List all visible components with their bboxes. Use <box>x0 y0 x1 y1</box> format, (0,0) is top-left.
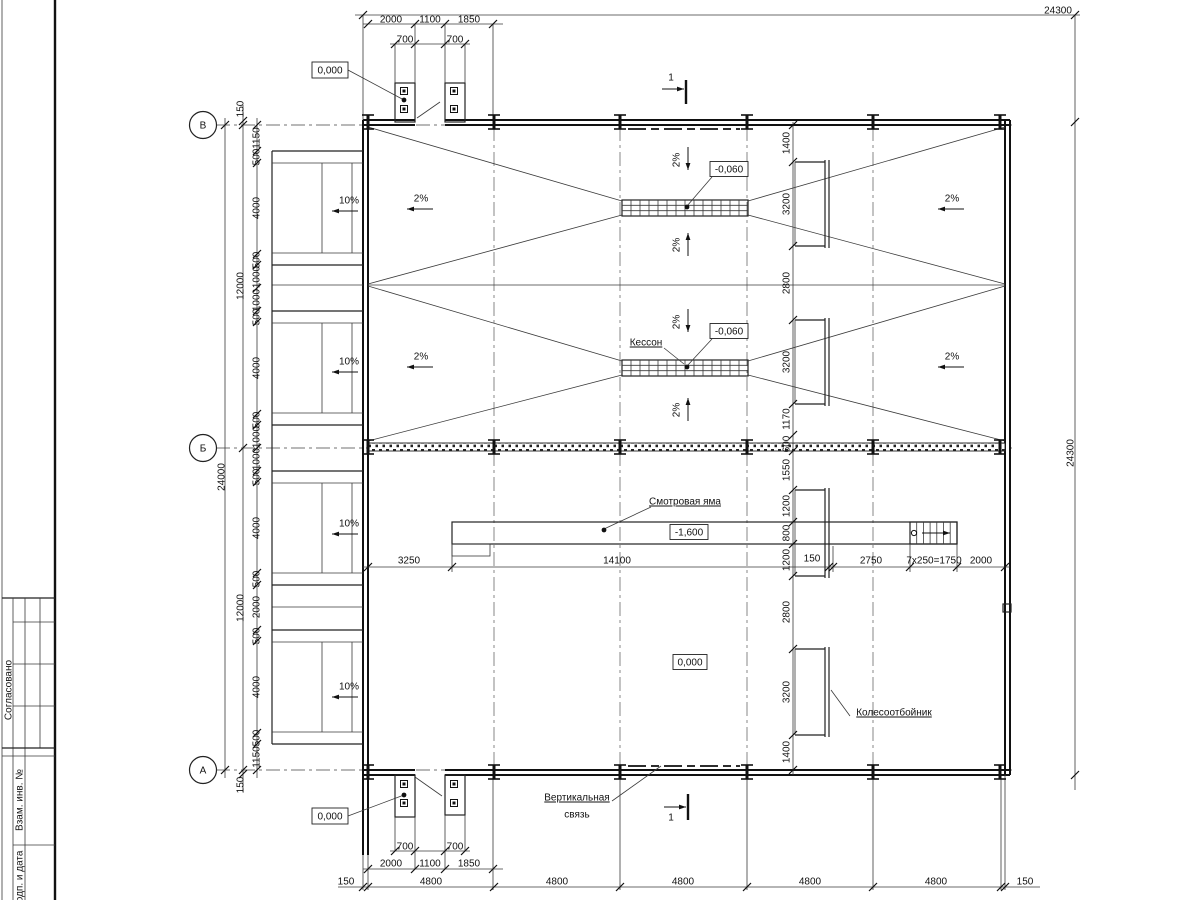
text-labels: 243002000110018507007000,000115011505004… <box>4 6 1077 900</box>
dim: 150 <box>236 776 247 793</box>
dim: 700 <box>397 35 414 46</box>
dim: 3250 <box>398 556 421 567</box>
dim: 500 <box>252 411 263 428</box>
floor-slope-lines <box>272 127 1005 607</box>
dim: 2800 <box>782 600 793 623</box>
note: Вертикальная <box>544 793 609 804</box>
dim: 1400 <box>782 740 793 763</box>
building-walls <box>363 120 1010 855</box>
slope: 2% <box>672 403 683 418</box>
dim: 1850 <box>458 859 481 870</box>
dim: 2750 <box>860 556 883 567</box>
elev: 0,000 <box>317 66 342 77</box>
section-number: 1 <box>668 813 674 824</box>
dim: 4800 <box>546 877 569 888</box>
dim: 1000 <box>252 425 263 448</box>
dim: 800 <box>782 524 793 541</box>
dim: 700 <box>397 842 414 853</box>
dim: 2000 <box>252 595 263 618</box>
elev: -1,600 <box>675 528 704 539</box>
dim: 4800 <box>799 877 822 888</box>
elev: 0,000 <box>677 658 702 669</box>
slope: 10% <box>339 519 359 530</box>
dim: 4800 <box>925 877 948 888</box>
dim: 4000 <box>252 356 263 379</box>
dim: 4800 <box>672 877 695 888</box>
slope: 2% <box>945 194 960 205</box>
dim: 2000 <box>970 556 993 567</box>
slope: 2% <box>414 194 429 205</box>
note: Смотровая яма <box>649 497 721 508</box>
slope: 2% <box>945 352 960 363</box>
dim: 1000 <box>252 447 263 470</box>
drainage-channel <box>368 443 1005 451</box>
dim: 700 <box>447 35 464 46</box>
elev: -0,060 <box>715 327 744 338</box>
slope: 2% <box>414 352 429 363</box>
dim: 12000 <box>236 272 247 300</box>
dim: 500 <box>252 251 263 268</box>
elev: -0,060 <box>715 165 744 176</box>
axis: В <box>200 121 207 132</box>
axis: Б <box>200 444 207 455</box>
caisson-grates <box>622 200 748 376</box>
elev: 0,000 <box>317 812 342 823</box>
note: Кессон <box>630 338 663 349</box>
note: связь <box>564 810 589 821</box>
dim: 3200 <box>782 680 793 703</box>
dim: 500 <box>252 468 263 485</box>
dim: 7x250=1750 <box>906 556 962 567</box>
dim: 1400 <box>782 131 793 154</box>
slope: 10% <box>339 682 359 693</box>
dim: 1200 <box>782 548 793 571</box>
dim: 4800 <box>420 877 443 888</box>
dim: 150 <box>236 100 247 117</box>
dim: 1170 <box>782 408 793 430</box>
dim: 150 <box>1017 877 1034 888</box>
dim: 500 <box>252 570 263 587</box>
dim: 150 <box>804 554 821 565</box>
dim-overall-right: 24300 <box>1066 439 1077 467</box>
dim: 500 <box>252 627 263 644</box>
dim: 3200 <box>782 192 793 215</box>
dim: 700 <box>447 842 464 853</box>
dim: 600 <box>782 435 793 452</box>
stamp-label: Согласовано <box>4 660 15 721</box>
note: Колесоотбойник <box>856 707 932 719</box>
dim: 4000 <box>252 516 263 539</box>
dim: 12000 <box>236 594 247 622</box>
dim: 1000 <box>252 288 263 311</box>
stamp-label: Подп. и дата <box>15 850 26 900</box>
section-number: 1 <box>668 73 674 84</box>
dim: 1000 <box>252 265 263 288</box>
dim: 2000 <box>380 859 403 870</box>
dim: 1150 <box>252 127 263 149</box>
dim: 24000 <box>217 463 228 491</box>
dim: 1200 <box>782 494 793 517</box>
slope: 2% <box>672 315 683 330</box>
dim: 2800 <box>782 271 793 294</box>
dim: 3200 <box>782 350 793 373</box>
dim: 500 <box>252 729 263 746</box>
slope: 2% <box>672 238 683 253</box>
dim: 1150 <box>252 746 263 768</box>
stamp-label: Взам. инв. № <box>15 769 26 831</box>
dim: 150 <box>338 877 355 888</box>
slope: 10% <box>339 357 359 368</box>
drawing-sheet: 243002000110018507007000,000115011505004… <box>0 0 1200 900</box>
dim: 2000 <box>380 15 403 26</box>
slope: 10% <box>339 196 359 207</box>
dimension-lines <box>225 15 1080 890</box>
dim-overall-top: 24300 <box>1044 6 1072 17</box>
dim: 500 <box>252 308 263 325</box>
dim: 1550 <box>782 458 793 481</box>
dim: 4000 <box>252 196 263 219</box>
dim: 4000 <box>252 675 263 698</box>
dim: 500 <box>252 148 263 165</box>
sheet-frame <box>2 0 55 900</box>
dim: 1100 <box>419 859 441 870</box>
ramps <box>272 151 363 744</box>
slope: 2% <box>672 153 683 168</box>
dim: 1100 <box>419 15 441 26</box>
dim: 1850 <box>458 15 481 26</box>
plan-canvas: 243002000110018507007000,000115011505004… <box>0 0 1200 900</box>
axis: А <box>200 766 207 777</box>
dim: 14100 <box>603 556 631 567</box>
